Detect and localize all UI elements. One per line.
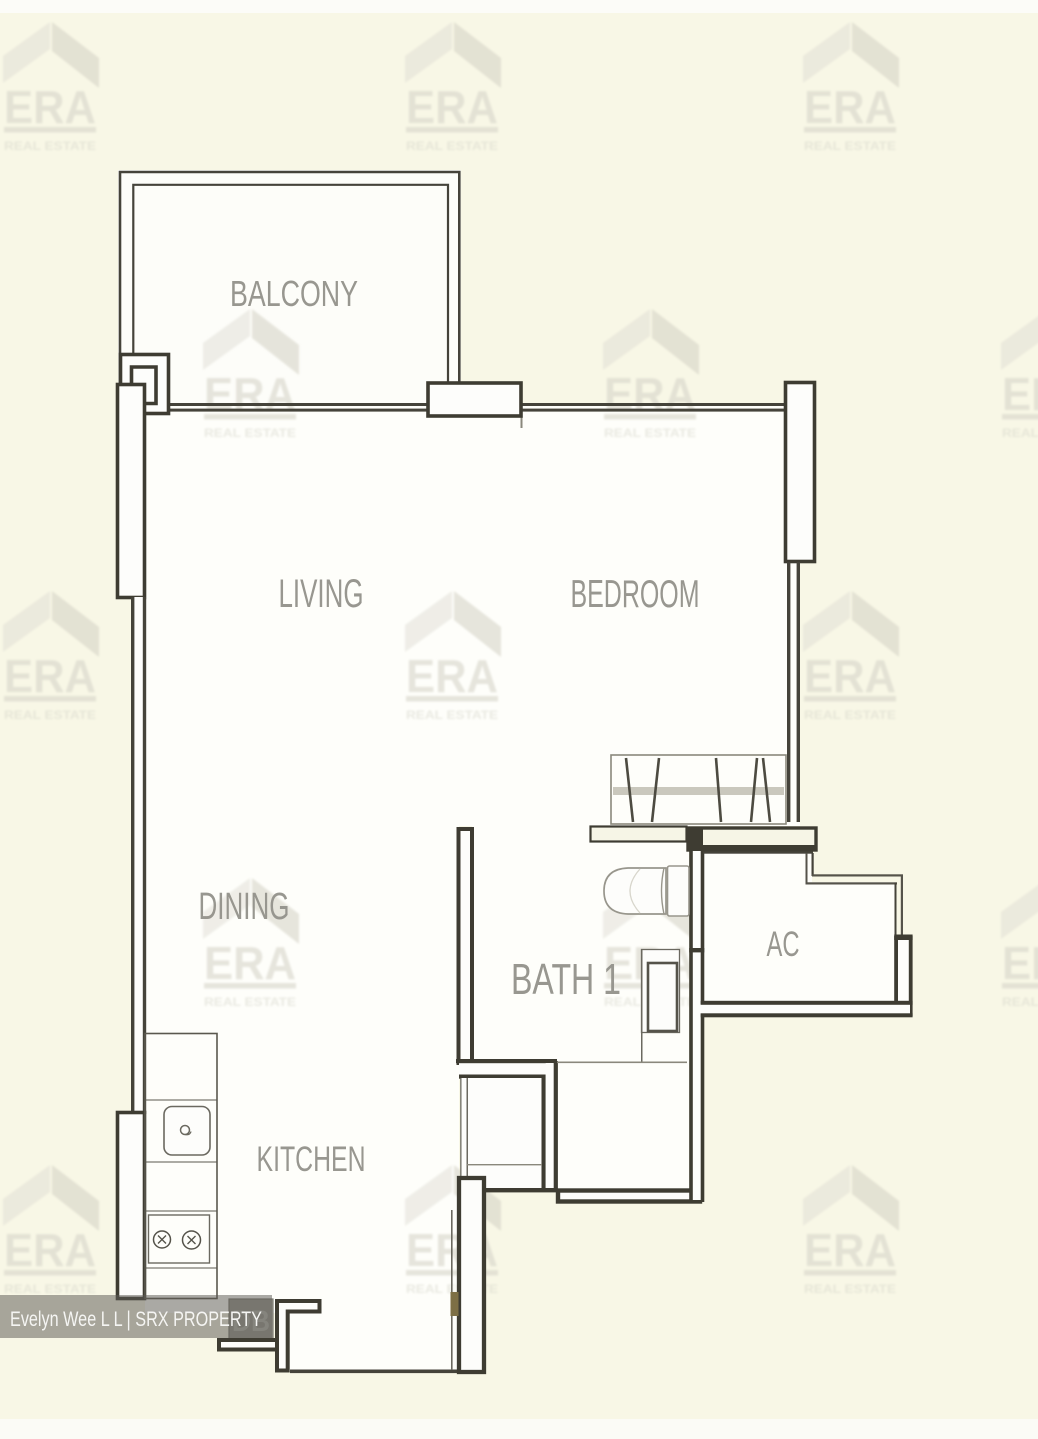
svg-text:BEDROOM: BEDROOM — [571, 573, 700, 616]
svg-text:BATH 1: BATH 1 — [511, 955, 621, 1004]
svg-text:LIVING: LIVING — [279, 572, 364, 616]
svg-text:DINING: DINING — [199, 886, 290, 928]
svg-text:KITCHEN: KITCHEN — [257, 1140, 366, 1179]
svg-text:Evelyn Wee L L | SRX PROPERTY: Evelyn Wee L L | SRX PROPERTY — [10, 1308, 262, 1331]
svg-text:AC: AC — [767, 925, 800, 964]
svg-text:BALCONY: BALCONY — [230, 273, 358, 314]
